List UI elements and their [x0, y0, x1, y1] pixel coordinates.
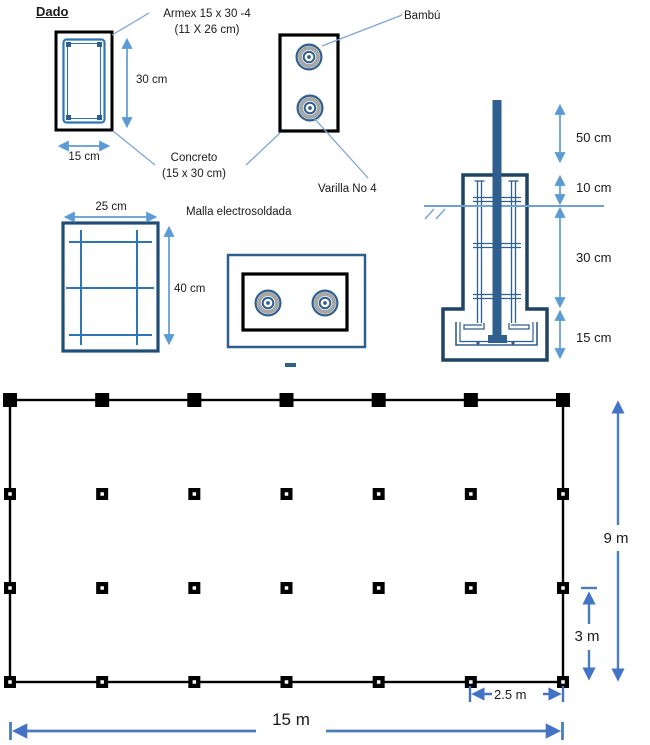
plan-column-square [187, 393, 201, 407]
armex-label: Armex 15 x 30 -4 (11 X 26 cm) [148, 6, 266, 38]
plan-column-square [372, 393, 386, 407]
plan-column-square [3, 393, 17, 407]
plan-column-square-dot [377, 492, 381, 496]
bamboo-pole [493, 100, 502, 340]
dado-title: Dado [36, 4, 69, 19]
bamboo-symbol [313, 291, 338, 316]
armex-label-line1: Armex 15 x 30 -4 [148, 6, 266, 22]
armex-label-line2: (11 X 26 cm) [148, 22, 266, 38]
bamboo-leader-line [322, 15, 402, 46]
mesh-width-dim-label: 25 cm [87, 199, 135, 215]
plan-column-square-dot [377, 680, 381, 684]
bamboo-symbol [297, 45, 322, 70]
plan-column-square-dot [561, 586, 565, 590]
dado-width-dim-label: 15 cm [58, 149, 110, 165]
plan-column-square-dot [285, 586, 289, 590]
bamboo-symbol [298, 96, 323, 121]
concrete-leader-line-1 [113, 131, 155, 165]
dado-cross-section [56, 13, 155, 165]
plan-column-square [95, 393, 109, 407]
plan-column-square-dot [8, 680, 12, 684]
plan-column-square-dot [285, 680, 289, 684]
diagram-drawing [0, 0, 650, 745]
welded-mesh-drawing [63, 217, 169, 351]
plan-column-square-dot [8, 586, 12, 590]
plan-width-dim-label: 15 m [262, 710, 320, 729]
plan-column-square-dot [561, 680, 565, 684]
foundation-dim-15cm: 15 cm [576, 330, 611, 345]
plan-column-square [280, 393, 294, 407]
plan-height-dim-label: 9 m [594, 530, 638, 547]
plan-column-square-dot [100, 492, 104, 496]
plan-column-square-dot [377, 586, 381, 590]
double-bamboo-section [228, 255, 365, 367]
foundation-dim-30cm: 30 cm [576, 250, 611, 265]
armex-leader-line [112, 13, 149, 35]
bamboo-column-section [246, 15, 402, 178]
plan-column-square-dot [285, 492, 289, 496]
plan-column-square-dot [193, 492, 197, 496]
bamboo-label: Bambú [404, 8, 440, 24]
rebar-leader-line [314, 118, 368, 178]
plan-column-square-dot [469, 492, 473, 496]
concrete-label-line1: Concreto [156, 150, 232, 166]
plan-column-square-dot [193, 586, 197, 590]
small-dash [285, 363, 296, 367]
bamboo-symbol [256, 291, 281, 316]
plan-column-square-dot [469, 586, 473, 590]
bamboo-pole-foot [488, 335, 507, 343]
plan-column-square [464, 393, 478, 407]
foundation-dim-10cm: 10 cm [576, 180, 611, 195]
plan-column-square-dot [100, 586, 104, 590]
rebar-label: Varilla No 4 [318, 181, 377, 197]
plan-column-square [556, 393, 570, 407]
concrete-leader-line-2 [246, 133, 280, 165]
foundation-dim-50cm: 50 cm [576, 130, 611, 145]
plan-column-squares [3, 393, 570, 688]
plan-column-square-dot [561, 492, 565, 496]
plan-bay-height-dim-label: 3 m [566, 628, 608, 645]
plan-column-square-dot [193, 680, 197, 684]
concrete-label-line2: (15 x 30 cm) [156, 166, 232, 182]
plan-column-square-dot [8, 492, 12, 496]
plan-column-square-dot [469, 680, 473, 684]
mesh-height-dim-label: 40 cm [174, 281, 205, 297]
plan-outline [10, 400, 563, 682]
mesh-label: Malla electrosoldada [186, 204, 291, 220]
diagram-canvas: Dado Armex 15 x 30 -4 (11 X 26 cm) Bambú… [0, 0, 650, 745]
plan-column-square-dot [100, 680, 104, 684]
dado-height-dim-label: 30 cm [136, 72, 167, 88]
concrete-label: Concreto (15 x 30 cm) [156, 150, 232, 182]
plan-bay-width-dim-label: 2.5 m [494, 687, 527, 702]
